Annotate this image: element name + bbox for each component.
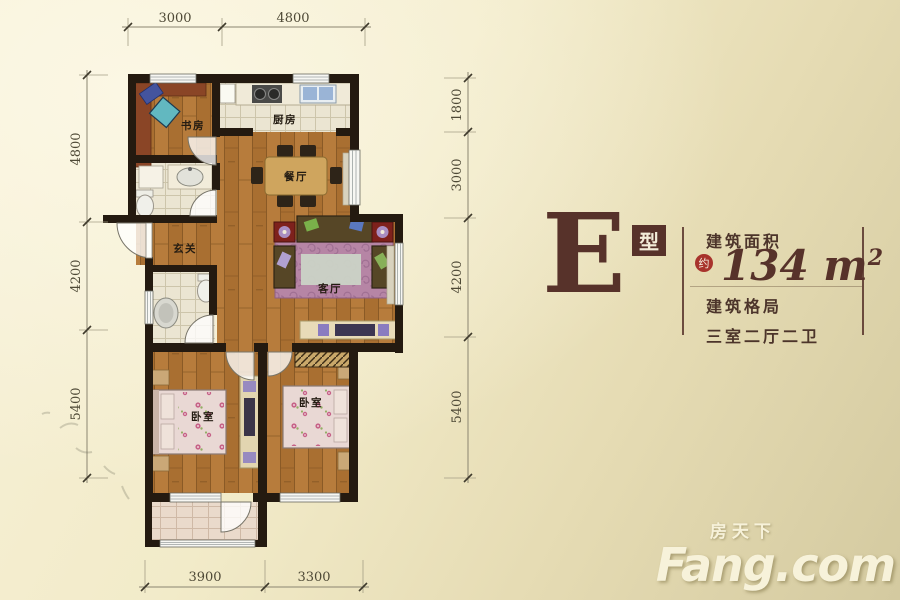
floorplan-page: 书房 厨房 餐厅 玄关 客厅 卧室 卧室 3000 4800 3900 3300… <box>0 0 900 600</box>
study-label: 书房 <box>181 119 205 132</box>
dimension-left: 4800 4200 5400 <box>69 70 108 483</box>
dim-label: 4800 <box>69 132 84 165</box>
type-letter: E <box>542 199 626 309</box>
living-window <box>395 243 403 305</box>
area-value: 134 m2 <box>721 241 883 290</box>
radiator <box>387 246 394 304</box>
dim-label: 4200 <box>69 259 84 292</box>
wardrobe-left <box>240 376 259 468</box>
type-badge: 型 <box>632 225 666 256</box>
toilet-1 <box>136 190 154 217</box>
dim-label: 4200 <box>450 260 465 293</box>
panel-divider-left <box>682 227 684 335</box>
dimension-top: 3000 4800 <box>122 11 371 46</box>
approx-badge: 约 <box>695 254 713 272</box>
dim-label: 1800 <box>450 88 465 121</box>
layout-label: 建筑格局 <box>706 293 782 317</box>
dim-label: 3300 <box>297 570 330 585</box>
kitchen-label: 厨房 <box>273 113 297 126</box>
bath1-vanity <box>168 165 212 189</box>
kitchen-sink <box>300 85 336 103</box>
dim-label: 5400 <box>69 387 84 420</box>
nightstand <box>152 456 169 471</box>
type-info-panel: E 型 建筑面积 约 134 m2 建筑格局 三室二厅二卫 <box>540 215 885 345</box>
watermark-logo: Fang.com <box>656 542 895 588</box>
dim-label: 3000 <box>158 11 191 26</box>
bedroom-left-window <box>170 493 221 502</box>
dim-label: 4800 <box>276 11 309 26</box>
panel-rule <box>690 286 862 287</box>
dining-label: 餐厅 <box>283 170 308 183</box>
nightstand <box>152 370 169 385</box>
dimension-bottom: 3900 3300 <box>139 560 369 593</box>
bedroom-left-label: 卧室 <box>191 410 215 423</box>
fridge <box>220 84 235 103</box>
fang-watermark: 房天下 Fang.com <box>656 524 895 588</box>
paper-smudges <box>42 413 129 499</box>
bedroom-right-label: 卧室 <box>299 396 323 409</box>
entry-label: 玄关 <box>173 242 197 255</box>
dim-label: 5400 <box>450 390 465 423</box>
bedroom-right-window <box>280 493 340 502</box>
kitchen-window <box>293 74 329 83</box>
wardrobe-right <box>295 352 357 367</box>
living-label: 客厅 <box>317 282 342 295</box>
bath2-window <box>145 291 153 324</box>
pedestal-sink <box>154 298 178 328</box>
tv-cabinet <box>300 321 397 339</box>
balcony-window <box>160 540 255 547</box>
dimension-right: 1800 3000 4200 5400 <box>444 72 476 483</box>
stove <box>252 85 282 103</box>
area-exponent: 2 <box>868 245 883 271</box>
dim-label: 3000 <box>450 158 465 191</box>
layout-value: 三室二厅二卫 <box>706 323 820 347</box>
bed-right <box>283 386 357 448</box>
entry-door-leaf <box>146 223 152 258</box>
study-window <box>150 74 196 83</box>
dim-label: 3900 <box>188 570 221 585</box>
washer <box>139 166 163 188</box>
dining-window <box>349 150 360 205</box>
